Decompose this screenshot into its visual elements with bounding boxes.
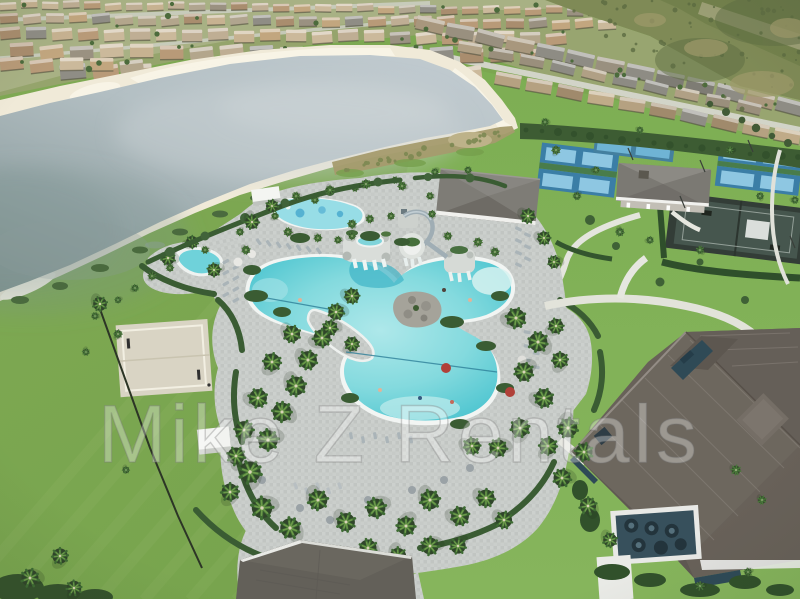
svg-text:Mike Z Rentals: Mike Z Rentals xyxy=(98,389,701,480)
